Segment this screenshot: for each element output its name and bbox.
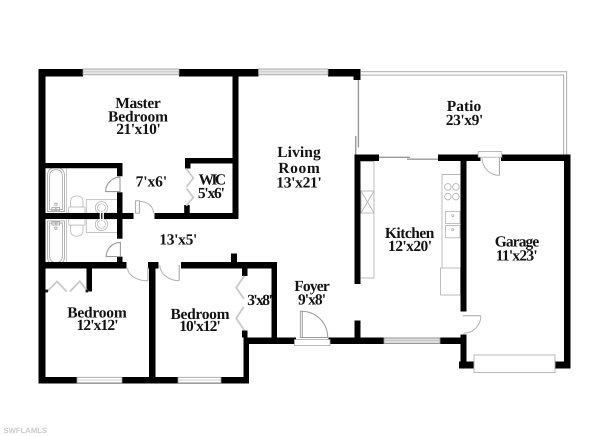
svg-text:13'x21': 13'x21' — [276, 174, 322, 191]
svg-text:5'x6': 5'x6' — [198, 185, 225, 202]
svg-text:9'x8': 9'x8' — [298, 292, 326, 309]
svg-text:11'x23': 11'x23' — [496, 248, 538, 265]
svg-text:13'x5': 13'x5' — [159, 231, 197, 248]
svg-text:12'x12': 12'x12' — [77, 317, 119, 334]
svg-text:21'x10': 21'x10' — [116, 121, 161, 138]
svg-text:23'x9': 23'x9' — [446, 112, 484, 129]
svg-text:SWFLAMLS: SWFLAMLS — [4, 426, 48, 435]
svg-text:3'x8': 3'x8' — [247, 292, 273, 309]
svg-text:Living: Living — [277, 144, 321, 161]
svg-text:10'x12': 10'x12' — [179, 318, 221, 335]
svg-text:7'x6': 7'x6' — [136, 174, 168, 191]
svg-text:12'x20': 12'x20' — [388, 238, 432, 255]
